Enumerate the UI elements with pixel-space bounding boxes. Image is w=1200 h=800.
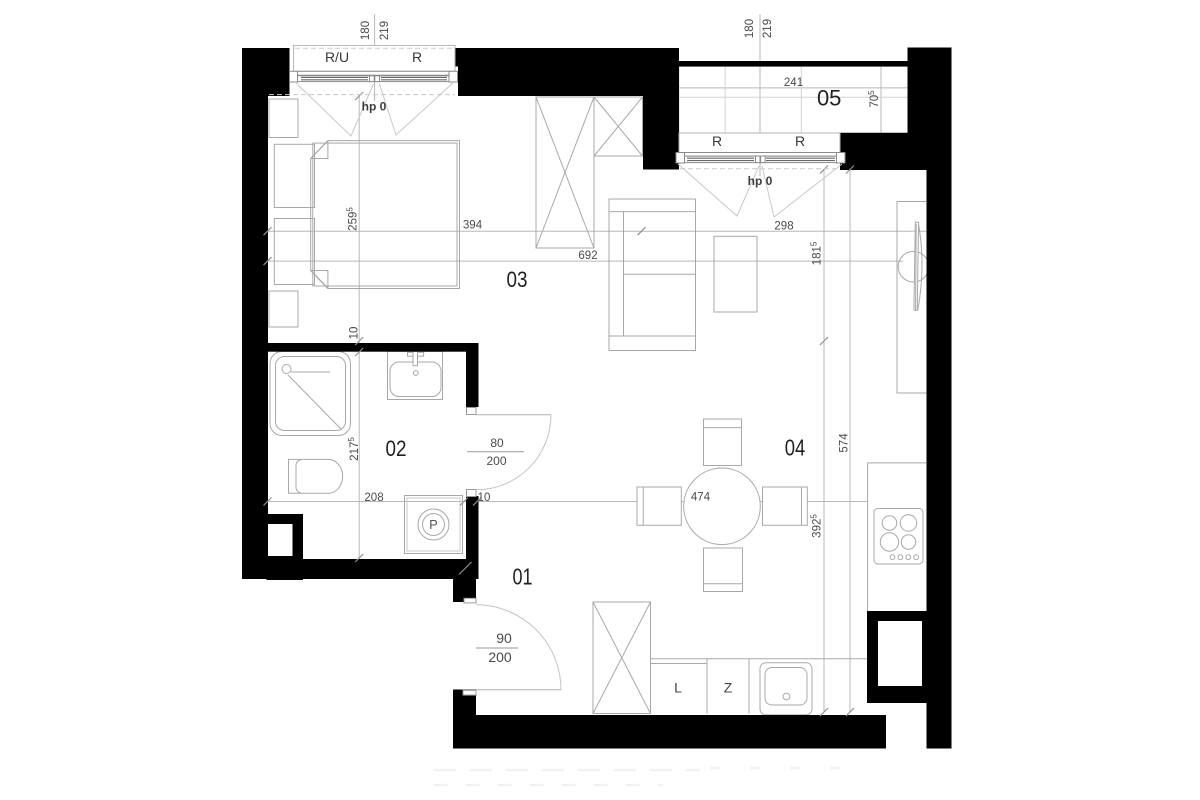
- svg-text:474: 474: [691, 491, 711, 503]
- svg-text:hp 0: hp 0: [748, 174, 773, 188]
- svg-text:219: 219: [379, 21, 391, 40]
- svg-text:10: 10: [349, 327, 361, 340]
- svg-text:R/U: R/U: [325, 49, 349, 65]
- svg-text:R: R: [712, 133, 722, 149]
- svg-text:241: 241: [784, 77, 803, 89]
- svg-text:219: 219: [762, 19, 774, 38]
- svg-text:200: 200: [488, 649, 512, 665]
- svg-text:R: R: [412, 49, 422, 65]
- svg-text:692: 692: [578, 250, 597, 262]
- svg-text:90: 90: [496, 630, 512, 646]
- svg-text:Z: Z: [724, 680, 733, 696]
- svg-text:05: 05: [817, 85, 842, 110]
- svg-text:394: 394: [463, 219, 483, 231]
- svg-text:01: 01: [513, 564, 533, 590]
- svg-text:80: 80: [490, 436, 504, 450]
- svg-text:574: 574: [839, 433, 851, 453]
- svg-text:P: P: [429, 517, 438, 532]
- svg-text:02: 02: [386, 436, 407, 461]
- svg-text:R: R: [795, 133, 805, 149]
- svg-text:04: 04: [785, 435, 806, 461]
- svg-text:03: 03: [507, 267, 528, 292]
- svg-text:200: 200: [486, 454, 506, 468]
- svg-text:hp 0: hp 0: [362, 99, 387, 113]
- svg-text:10: 10: [478, 492, 491, 504]
- svg-text:180: 180: [744, 19, 756, 38]
- svg-text:180: 180: [360, 21, 372, 40]
- svg-text:L: L: [674, 680, 682, 696]
- svg-text:208: 208: [364, 492, 383, 504]
- svg-text:298: 298: [774, 220, 793, 232]
